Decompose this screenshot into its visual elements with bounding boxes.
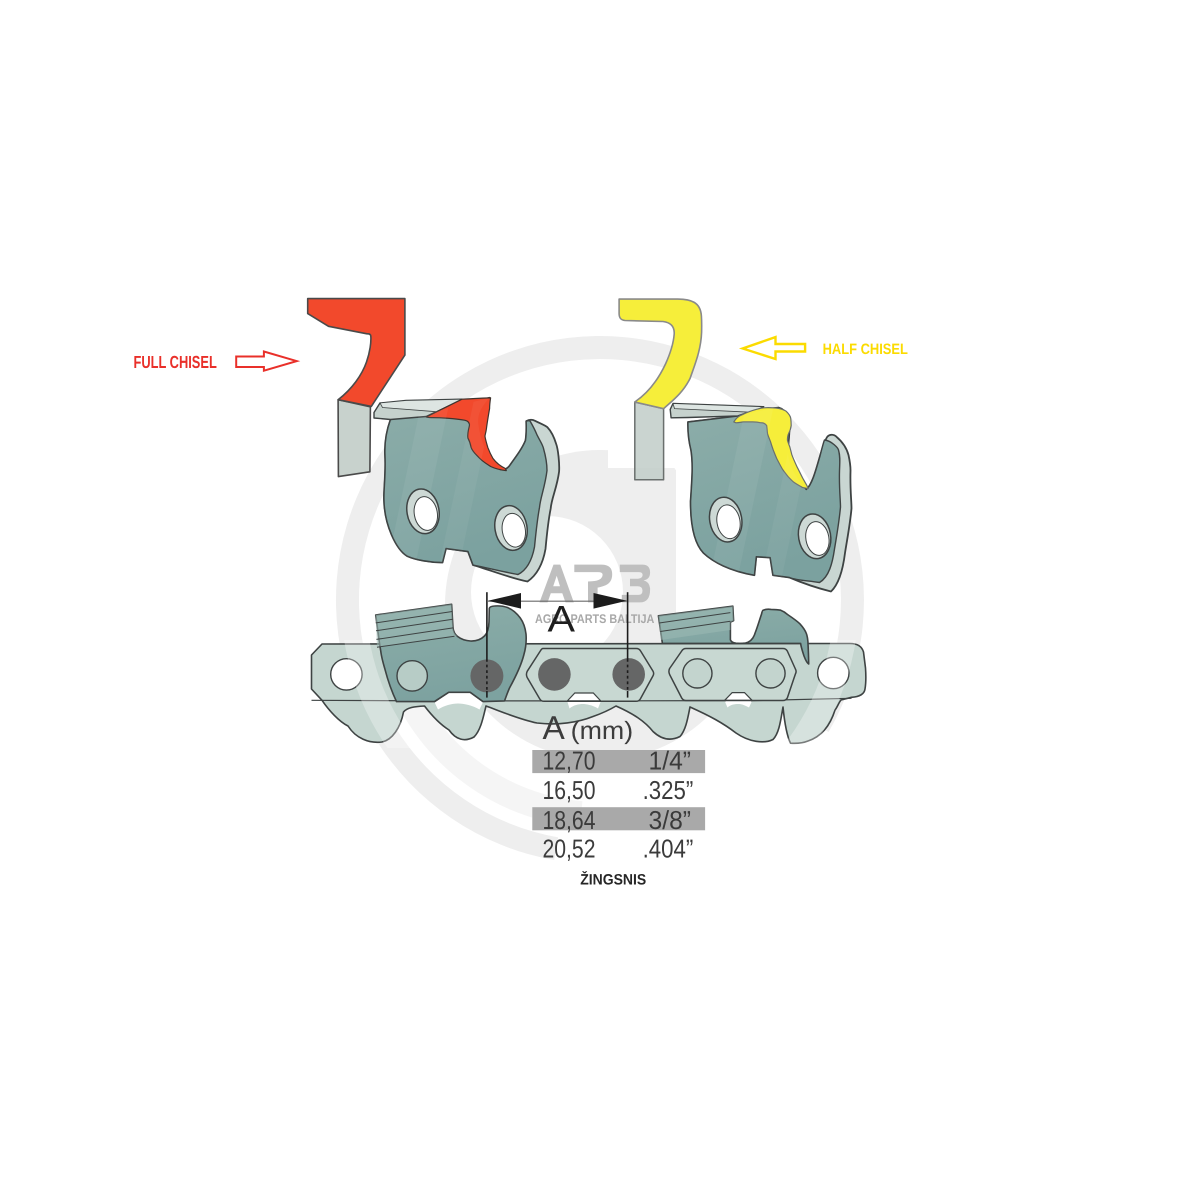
svg-text:.404”: .404” [643, 834, 694, 864]
svg-text:.325”: .325” [643, 775, 694, 805]
svg-text:18,64: 18,64 [543, 805, 596, 835]
svg-text:HALF CHISEL: HALF CHISEL [823, 341, 908, 358]
svg-text:1/4”: 1/4” [649, 746, 692, 776]
svg-text:20,52: 20,52 [543, 834, 596, 864]
svg-text:FULL CHISEL: FULL CHISEL [134, 352, 218, 372]
svg-text:(mm): (mm) [571, 717, 634, 745]
svg-text:A: A [543, 709, 565, 746]
svg-text:16,50: 16,50 [543, 775, 596, 805]
svg-text:A: A [548, 599, 576, 640]
svg-text:3/8”: 3/8” [649, 805, 692, 835]
svg-text:ŽINGSNIS: ŽINGSNIS [580, 871, 646, 889]
svg-text:12,70: 12,70 [543, 746, 596, 776]
